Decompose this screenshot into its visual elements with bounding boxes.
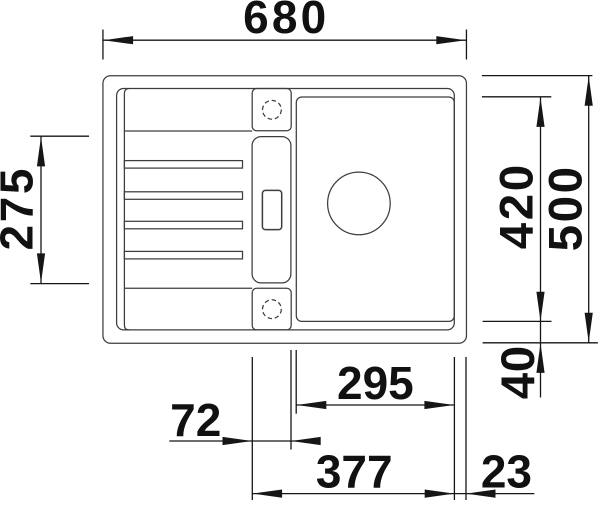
svg-text:500: 500 — [540, 164, 593, 251]
svg-text:23: 23 — [481, 445, 532, 497]
svg-text:72: 72 — [170, 394, 221, 446]
svg-text:275: 275 — [0, 166, 43, 251]
svg-text:680: 680 — [243, 0, 329, 43]
svg-text:295: 295 — [337, 357, 414, 409]
svg-text:377: 377 — [316, 445, 393, 497]
svg-text:420: 420 — [491, 162, 544, 249]
svg-text:40: 40 — [492, 345, 545, 399]
